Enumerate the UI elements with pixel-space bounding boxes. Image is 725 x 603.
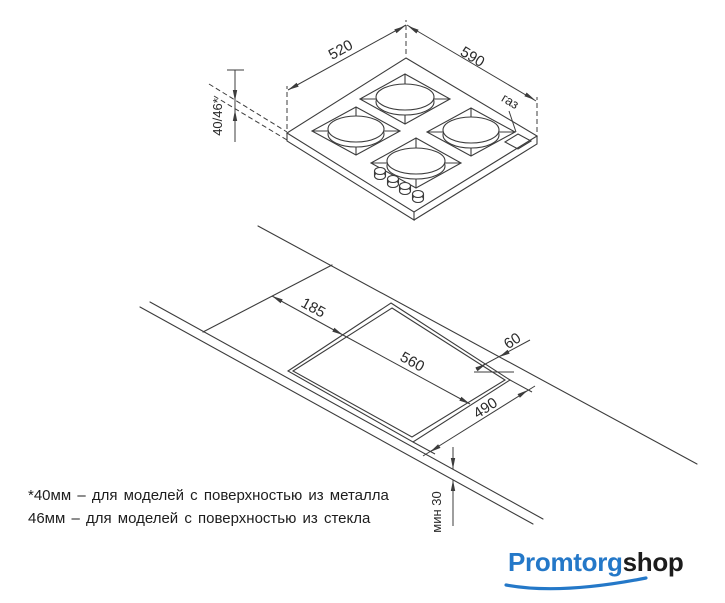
dim-width-490: 490 bbox=[413, 380, 535, 456]
length-dim-label: 560 bbox=[397, 349, 427, 376]
installation-diagram-page: 40/46* bbox=[0, 0, 725, 603]
front-clearance-dim-label: мин 30 bbox=[429, 491, 444, 532]
dim-offset-185: 185 bbox=[272, 295, 343, 335]
depth-dim-label: 590 bbox=[457, 43, 487, 70]
knob-icon bbox=[413, 191, 424, 203]
dim-front-clearance-min30: мин 30 bbox=[429, 447, 455, 533]
dim-back-clearance-60: 60 bbox=[474, 330, 530, 372]
footnote-line-1: *40мм – для моделей с поверхностью из ме… bbox=[28, 484, 389, 507]
gas-label: газ bbox=[499, 90, 522, 112]
footnote-line-2: 46мм – для моделей с поверхностью из сте… bbox=[28, 507, 389, 530]
thickness-dim-label: 40/46* bbox=[210, 98, 225, 136]
offset-dim-label: 185 bbox=[298, 295, 328, 322]
knob-icon bbox=[375, 168, 386, 180]
logo-promtorg: Promtorg bbox=[508, 547, 623, 577]
logo-shop: shop bbox=[623, 547, 684, 577]
dim-thickness-40-46: 40/46* bbox=[209, 70, 287, 142]
knob-icon bbox=[400, 183, 411, 195]
footnote: *40мм – для моделей с поверхностью из ме… bbox=[28, 484, 389, 530]
back-clearance-dim-label: 60 bbox=[501, 330, 524, 353]
width-dim-label: 520 bbox=[326, 37, 356, 64]
logo-swoosh-icon bbox=[500, 574, 652, 596]
knob-icon bbox=[388, 176, 399, 188]
hob-isometric-view: 40/46* bbox=[209, 20, 537, 220]
